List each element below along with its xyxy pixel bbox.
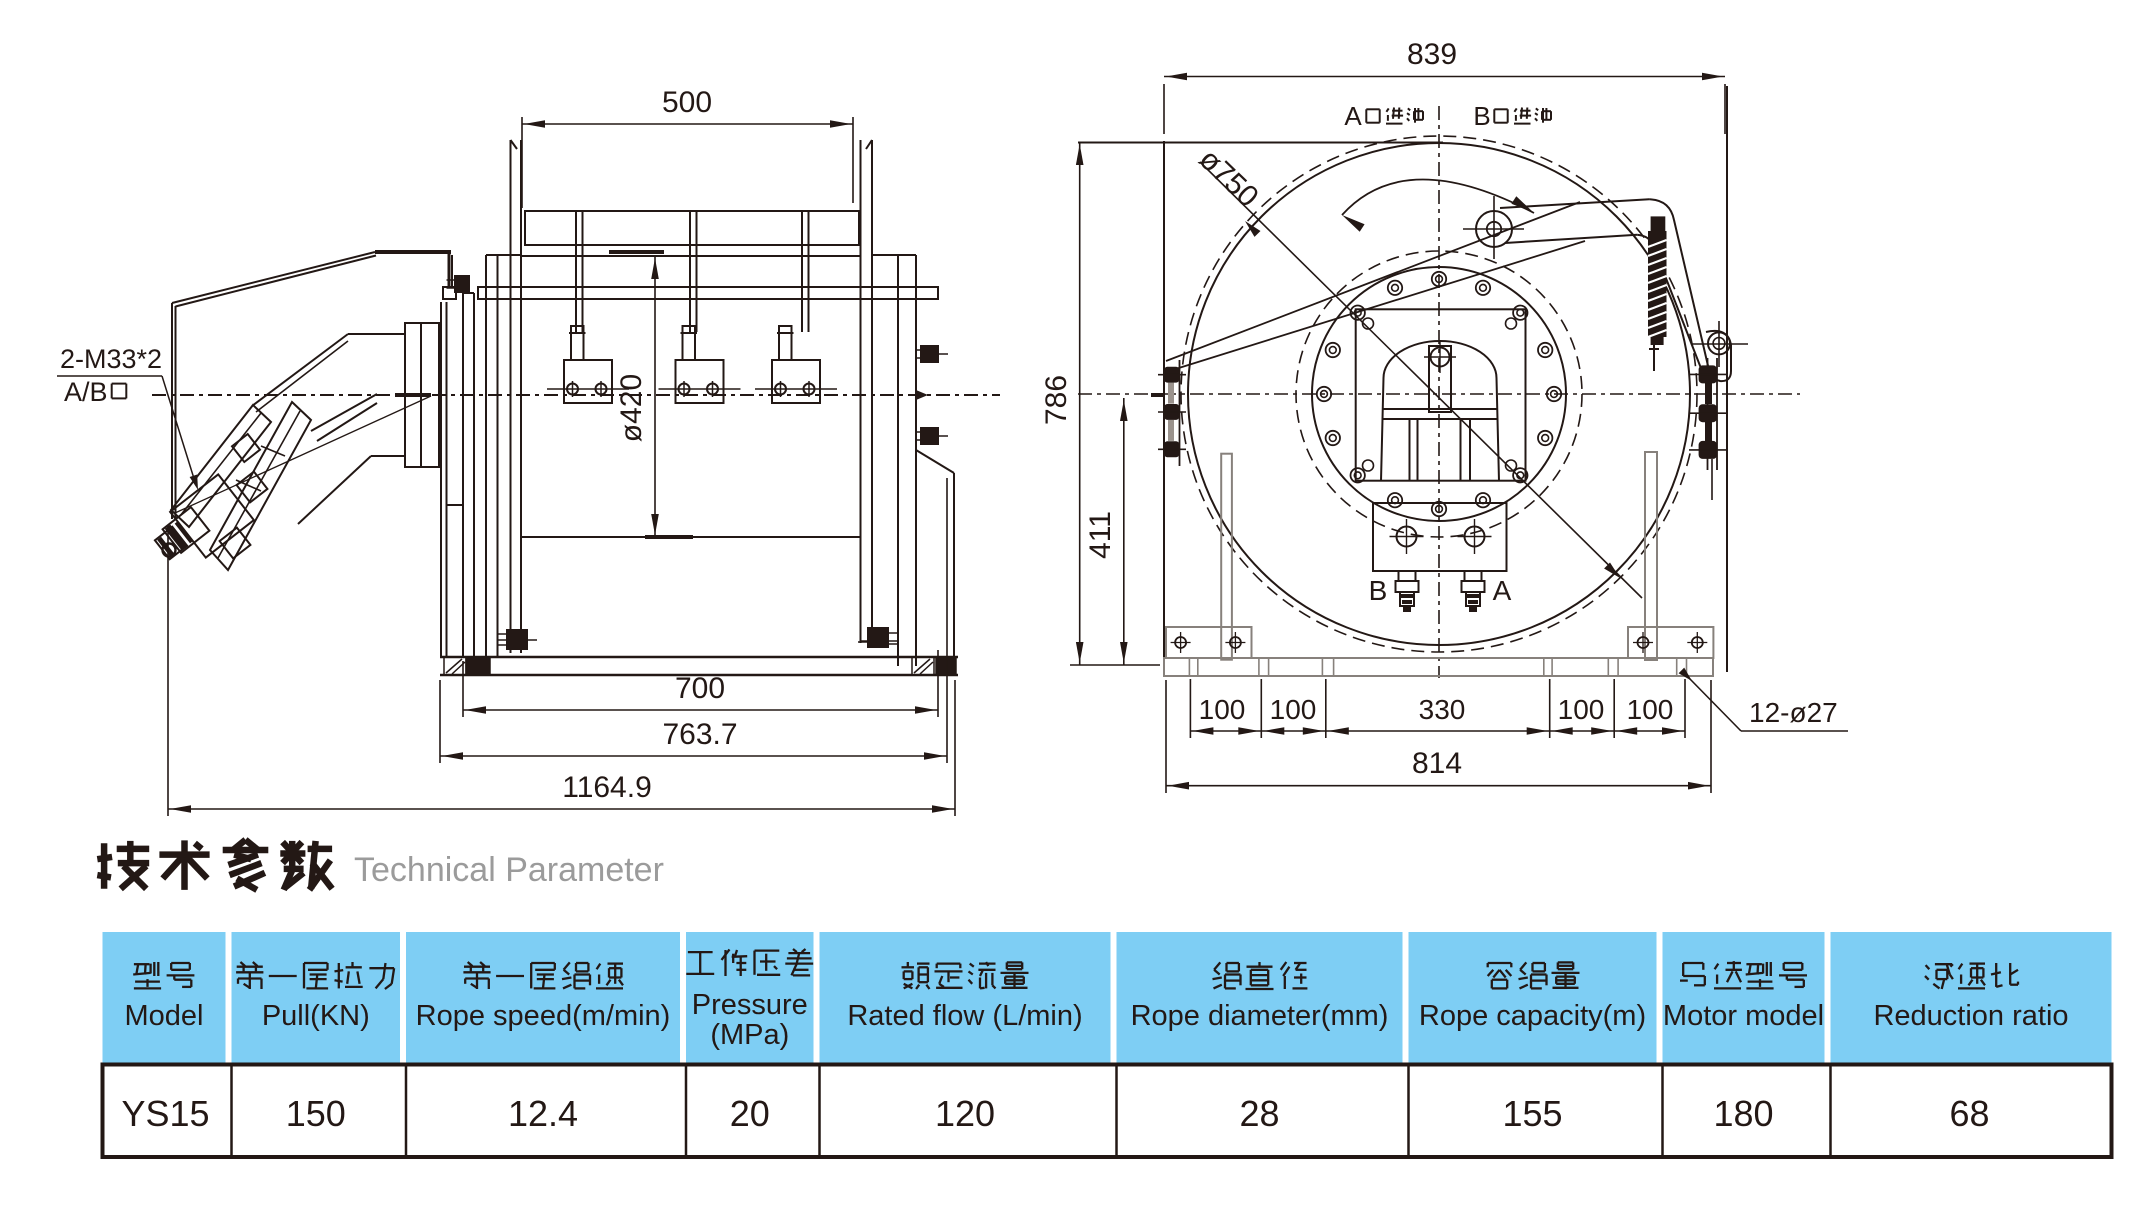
svg-text:Pressure: Pressure <box>692 989 808 1021</box>
svg-text:28: 28 <box>1239 1093 1279 1134</box>
svg-text:155: 155 <box>1502 1093 1562 1134</box>
svg-text:1164.9: 1164.9 <box>562 771 652 804</box>
svg-text:Motor model: Motor model <box>1663 1000 1824 1032</box>
svg-text:814: 814 <box>1412 747 1462 780</box>
svg-text:120: 120 <box>935 1093 995 1134</box>
svg-text:(MPa): (MPa) <box>710 1019 789 1051</box>
svg-text:12-ø27: 12-ø27 <box>1749 697 1838 728</box>
svg-text:B: B <box>1473 101 1490 131</box>
svg-text:100: 100 <box>1199 694 1246 725</box>
svg-text:YS15: YS15 <box>121 1093 209 1134</box>
svg-text:100: 100 <box>1627 694 1674 725</box>
svg-text:Rated flow (L/min): Rated flow (L/min) <box>847 1000 1082 1032</box>
svg-text:839: 839 <box>1407 38 1457 71</box>
svg-text:A: A <box>1493 575 1512 606</box>
svg-text:150: 150 <box>286 1093 346 1134</box>
svg-text:ø420: ø420 <box>615 374 648 442</box>
svg-text:Model: Model <box>125 1000 204 1032</box>
svg-text:100: 100 <box>1270 694 1317 725</box>
svg-text:2-M33*2: 2-M33*2 <box>60 344 162 374</box>
svg-text:20: 20 <box>730 1093 770 1134</box>
svg-text:700: 700 <box>675 672 725 705</box>
svg-text:A: A <box>1344 101 1362 131</box>
svg-text:411: 411 <box>1084 511 1117 559</box>
svg-text:B: B <box>1369 575 1388 606</box>
svg-text:763.7: 763.7 <box>662 718 737 751</box>
svg-text:Rope speed(m/min): Rope speed(m/min) <box>416 1000 671 1032</box>
svg-text:68: 68 <box>1949 1093 1989 1134</box>
svg-text:100: 100 <box>1558 694 1605 725</box>
svg-text:Pull(KN): Pull(KN) <box>262 1000 370 1032</box>
svg-text:A/B: A/B <box>64 377 108 407</box>
svg-text:330: 330 <box>1419 694 1466 725</box>
svg-text:Rope diameter(mm): Rope diameter(mm) <box>1131 1000 1389 1032</box>
svg-text:500: 500 <box>662 86 712 119</box>
svg-text:786: 786 <box>1040 375 1073 425</box>
svg-text:Reduction ratio: Reduction ratio <box>1873 1000 2068 1032</box>
svg-text:Rope capacity(m): Rope capacity(m) <box>1419 1000 1646 1032</box>
svg-text:12.4: 12.4 <box>508 1093 578 1134</box>
svg-text:Technical Parameter: Technical Parameter <box>354 851 664 889</box>
svg-text:180: 180 <box>1713 1093 1773 1134</box>
